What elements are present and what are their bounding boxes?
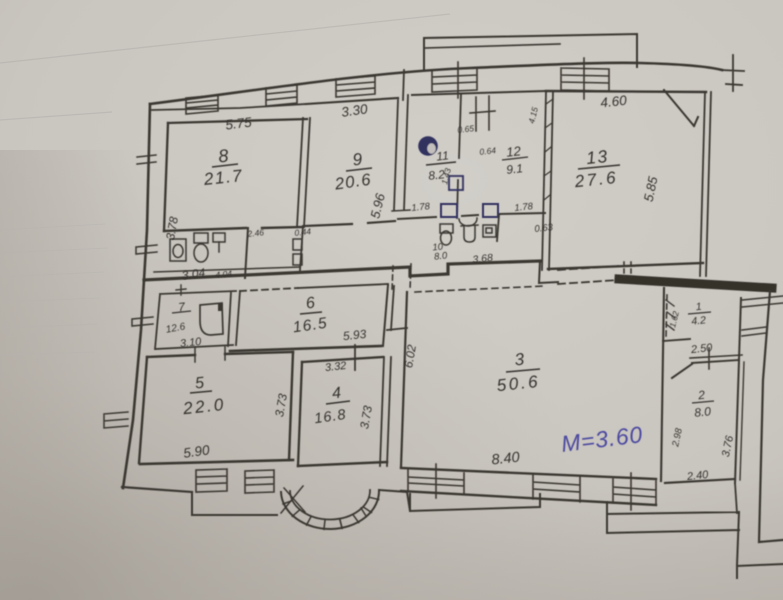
svg-text:11: 11 xyxy=(436,148,450,163)
svg-text:4.04: 4.04 xyxy=(215,268,233,280)
svg-text:8.0: 8.0 xyxy=(434,250,449,262)
svg-text:4.60: 4.60 xyxy=(600,93,628,111)
svg-text:5.93: 5.93 xyxy=(342,327,367,343)
svg-text:5: 5 xyxy=(194,375,205,393)
svg-text:2.50: 2.50 xyxy=(689,342,713,356)
svg-text:2.46: 2.46 xyxy=(246,227,265,239)
svg-text:0.44: 0.44 xyxy=(294,226,312,238)
svg-text:8.40: 8.40 xyxy=(491,450,521,469)
svg-text:9.1: 9.1 xyxy=(506,161,524,177)
svg-text:0.63: 0.63 xyxy=(534,222,554,235)
svg-text:8.0: 8.0 xyxy=(694,404,712,420)
svg-text:1.78: 1.78 xyxy=(411,201,431,214)
svg-text:3.32: 3.32 xyxy=(324,360,347,374)
svg-text:8: 8 xyxy=(217,146,229,167)
svg-text:13: 13 xyxy=(585,146,609,168)
svg-text:3.68: 3.68 xyxy=(472,252,494,266)
svg-text:3.10: 3.10 xyxy=(179,336,202,350)
svg-text:0.64: 0.64 xyxy=(479,145,497,157)
svg-text:1.78: 1.78 xyxy=(514,201,534,214)
svg-text:0.65: 0.65 xyxy=(457,123,475,135)
svg-text:4.2: 4.2 xyxy=(691,314,707,327)
svg-text:2.40: 2.40 xyxy=(685,469,709,483)
svg-text:4: 4 xyxy=(331,385,342,403)
svg-text:12: 12 xyxy=(506,143,523,160)
svg-text:1: 1 xyxy=(695,301,702,314)
